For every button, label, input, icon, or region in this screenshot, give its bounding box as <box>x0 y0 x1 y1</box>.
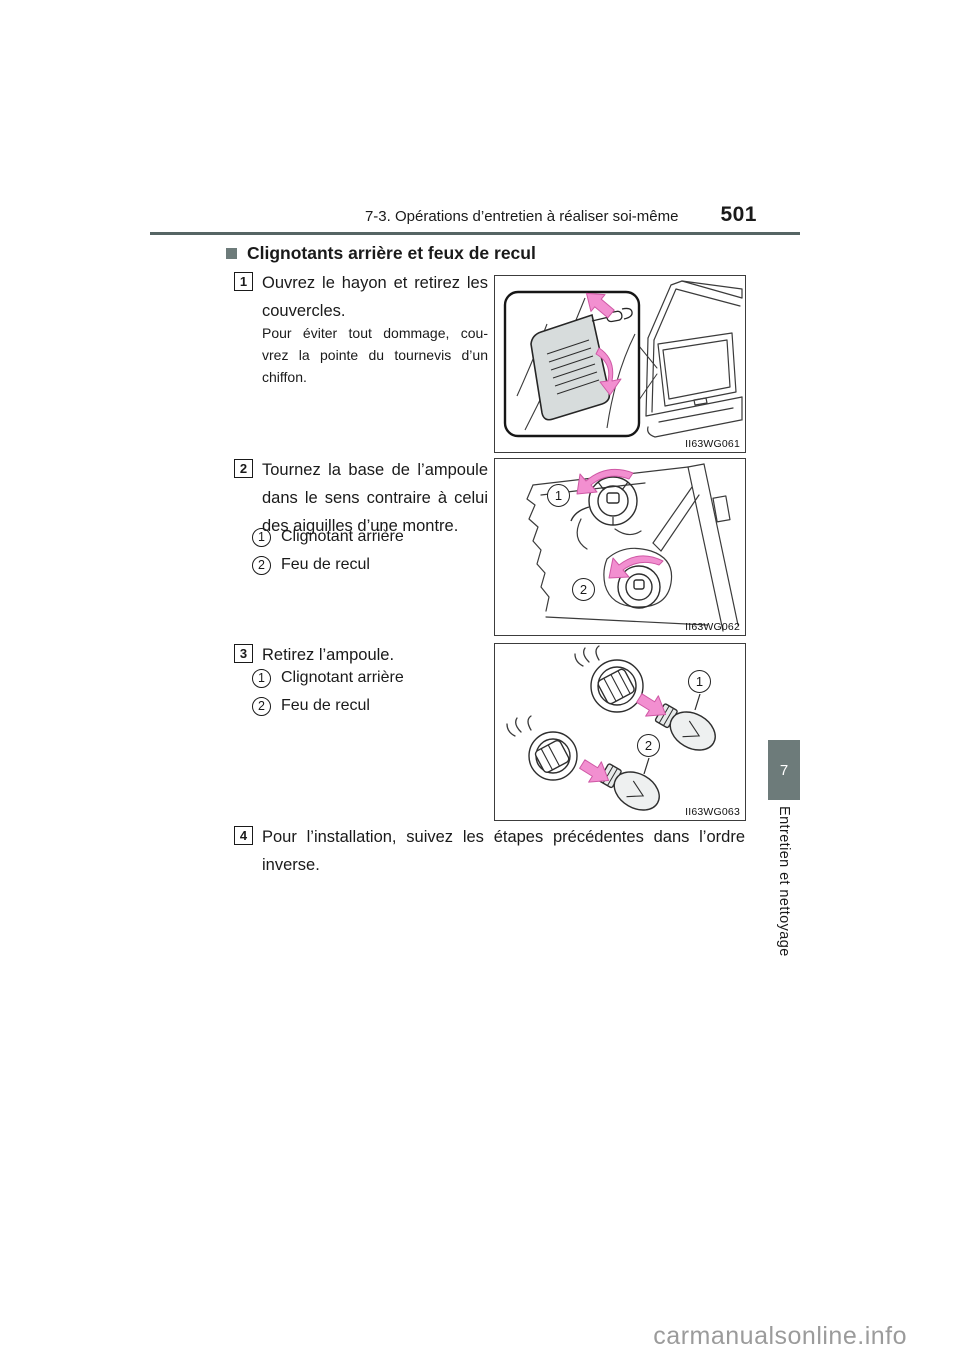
figure-3: 1 2 II63WG063 <box>494 643 746 821</box>
step-3-number-box: 3 <box>234 644 253 663</box>
step-1-line: Ouvrez le hayon et retirez les <box>262 269 488 297</box>
step-4: 4 Pour l’installation, suivez les étapes… <box>234 823 745 879</box>
note-line: Pour éviter tout dommage, cou- <box>262 322 488 344</box>
section-heading-text: Clignotants arrière et feux de recul <box>247 243 536 264</box>
figure-1: II63WG061 <box>494 275 746 453</box>
running-header: 7-3. Opérations d’entretien à réaliser s… <box>0 203 757 227</box>
item-label: Feu de recul <box>281 556 370 574</box>
square-bullet-icon <box>226 248 237 259</box>
header-rule <box>150 232 800 235</box>
step-4-number-box: 4 <box>234 826 253 845</box>
figure-2-caption: II63WG062 <box>685 621 740 633</box>
chapter-tab: 7 <box>768 740 800 800</box>
step-2-number-box: 2 <box>234 459 253 478</box>
step-1-number-box: 1 <box>234 272 253 291</box>
step-2-item-1: 1 Clignotant arrière <box>252 526 404 548</box>
step-1-note: Pour éviter tout dommage, cou- vrez la p… <box>262 322 488 388</box>
note-line: chiffon. <box>262 366 488 388</box>
bulb-removal-illustration <box>495 644 745 820</box>
running-header-title: 7-3. Opérations d’entretien à réaliser s… <box>365 208 678 225</box>
step-4-line: inverse. <box>262 851 745 879</box>
step-1-text: Ouvrez le hayon et retirez les couvercle… <box>262 269 488 325</box>
manual-page: 7-3. Opérations d’entretien à réaliser s… <box>0 0 960 1358</box>
circled-number: 2 <box>252 556 271 575</box>
step-3-text: Retirez l’ampoule. <box>262 641 488 669</box>
circled-number: 1 <box>252 528 271 547</box>
figure-2-marker-1: 1 <box>547 484 570 507</box>
step-4-line: Pour l’installation, suivez les étapes p… <box>262 823 745 851</box>
circled-number: 2 <box>252 697 271 716</box>
figure-2-marker-2: 2 <box>572 578 595 601</box>
circled-number: 1 <box>252 669 271 688</box>
note-line: vrez la pointe du tournevis d’un <box>262 344 488 366</box>
chapter-vertical-label: Entretien et nettoyage <box>768 806 800 957</box>
item-label: Feu de recul <box>281 697 370 715</box>
step-2-line: dans le sens contraire à celui <box>262 484 488 512</box>
item-label: Clignotant arrière <box>281 528 404 546</box>
step-3-item-1: 1 Clignotant arrière <box>252 667 404 689</box>
figure-3-marker-2: 2 <box>637 734 660 757</box>
figure-1-caption: II63WG061 <box>685 438 740 450</box>
chapter-number: 7 <box>780 762 788 779</box>
section-heading: Clignotants arrière et feux de recul <box>226 243 536 264</box>
tailgate-cover-removal-illustration <box>495 276 745 452</box>
item-label: Clignotant arrière <box>281 669 404 687</box>
step-2-line: Tournez la base de l’ampoule <box>262 456 488 484</box>
step-2-item-2: 2 Feu de recul <box>252 554 370 576</box>
figure-2: 1 2 II63WG062 <box>494 458 746 636</box>
step-3: 3 Retirez l’ampoule. <box>234 641 488 669</box>
step-3-line: Retirez l’ampoule. <box>262 641 488 669</box>
figure-3-caption: II63WG063 <box>685 806 740 818</box>
step-4-text: Pour l’installation, suivez les étapes p… <box>262 823 745 879</box>
page-number: 501 <box>720 203 757 227</box>
bulb-socket-rotation-illustration <box>495 459 745 635</box>
step-1-line: couvercles. <box>262 297 488 325</box>
figure-3-marker-1: 1 <box>688 670 711 693</box>
step-3-item-2: 2 Feu de recul <box>252 695 370 717</box>
watermark: carmanualsonline.info <box>653 1322 907 1351</box>
step-1: 1 Ouvrez le hayon et retirez les couverc… <box>234 269 488 325</box>
